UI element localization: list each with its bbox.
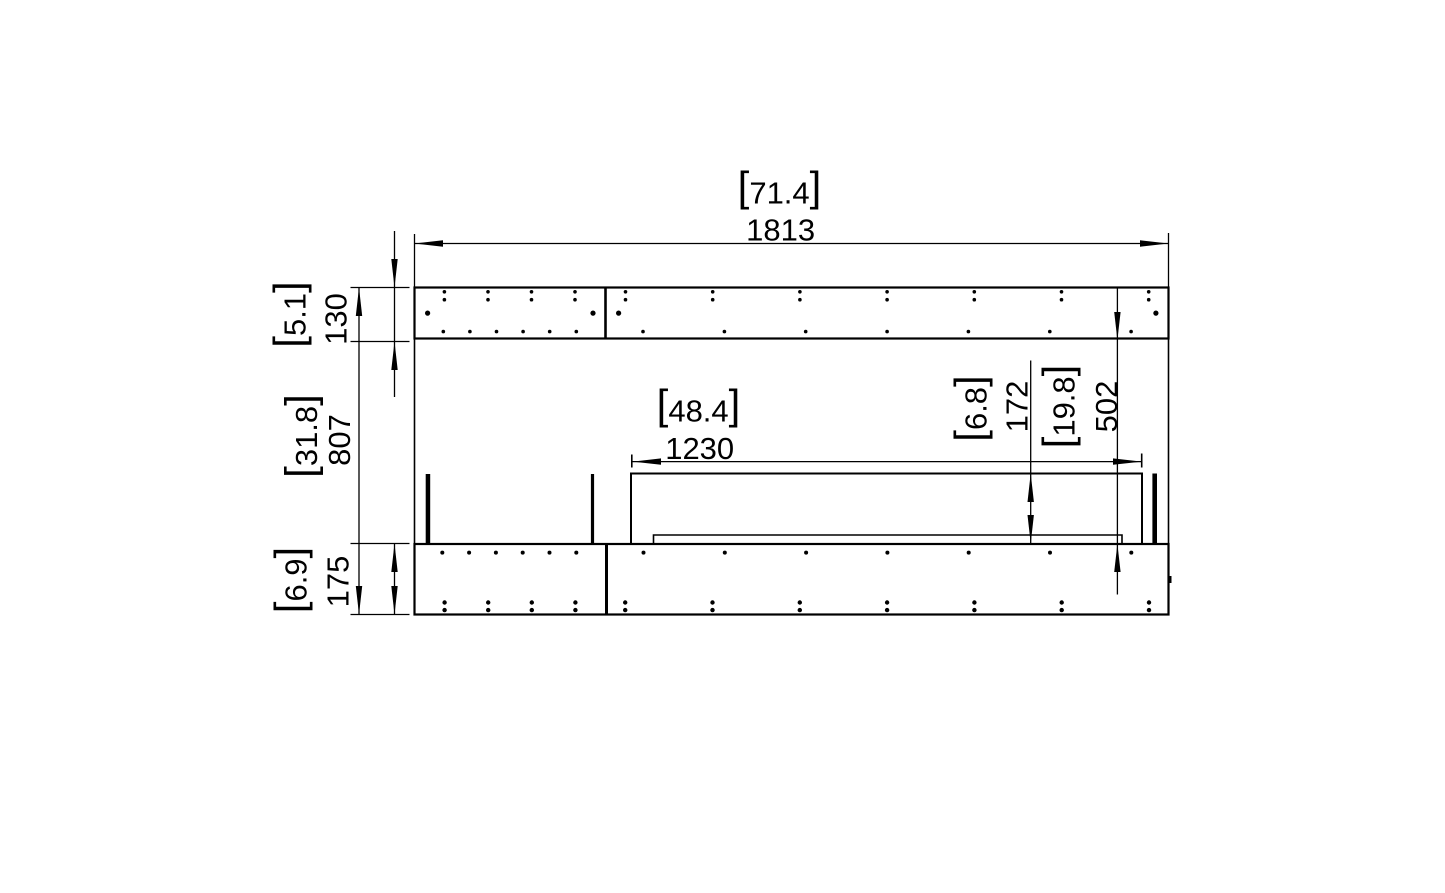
svg-text:807: 807: [322, 414, 357, 466]
svg-text:172: 172: [1000, 381, 1035, 433]
svg-text:130: 130: [319, 293, 354, 345]
svg-text:175: 175: [321, 556, 356, 608]
svg-text:1230: 1230: [665, 431, 734, 466]
svg-text:1813: 1813: [746, 213, 815, 248]
svg-text:502: 502: [1089, 381, 1124, 433]
